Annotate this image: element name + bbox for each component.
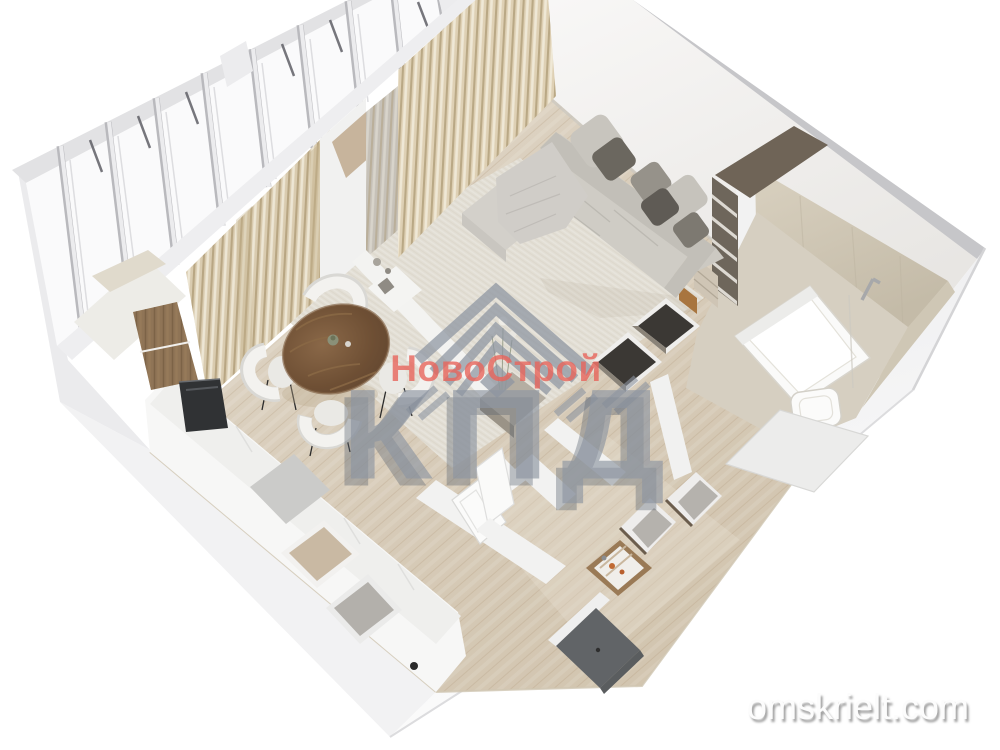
svg-text:omskrielt.com: omskrielt.com [747,686,969,727]
svg-text:КПД: КПД [343,366,679,504]
